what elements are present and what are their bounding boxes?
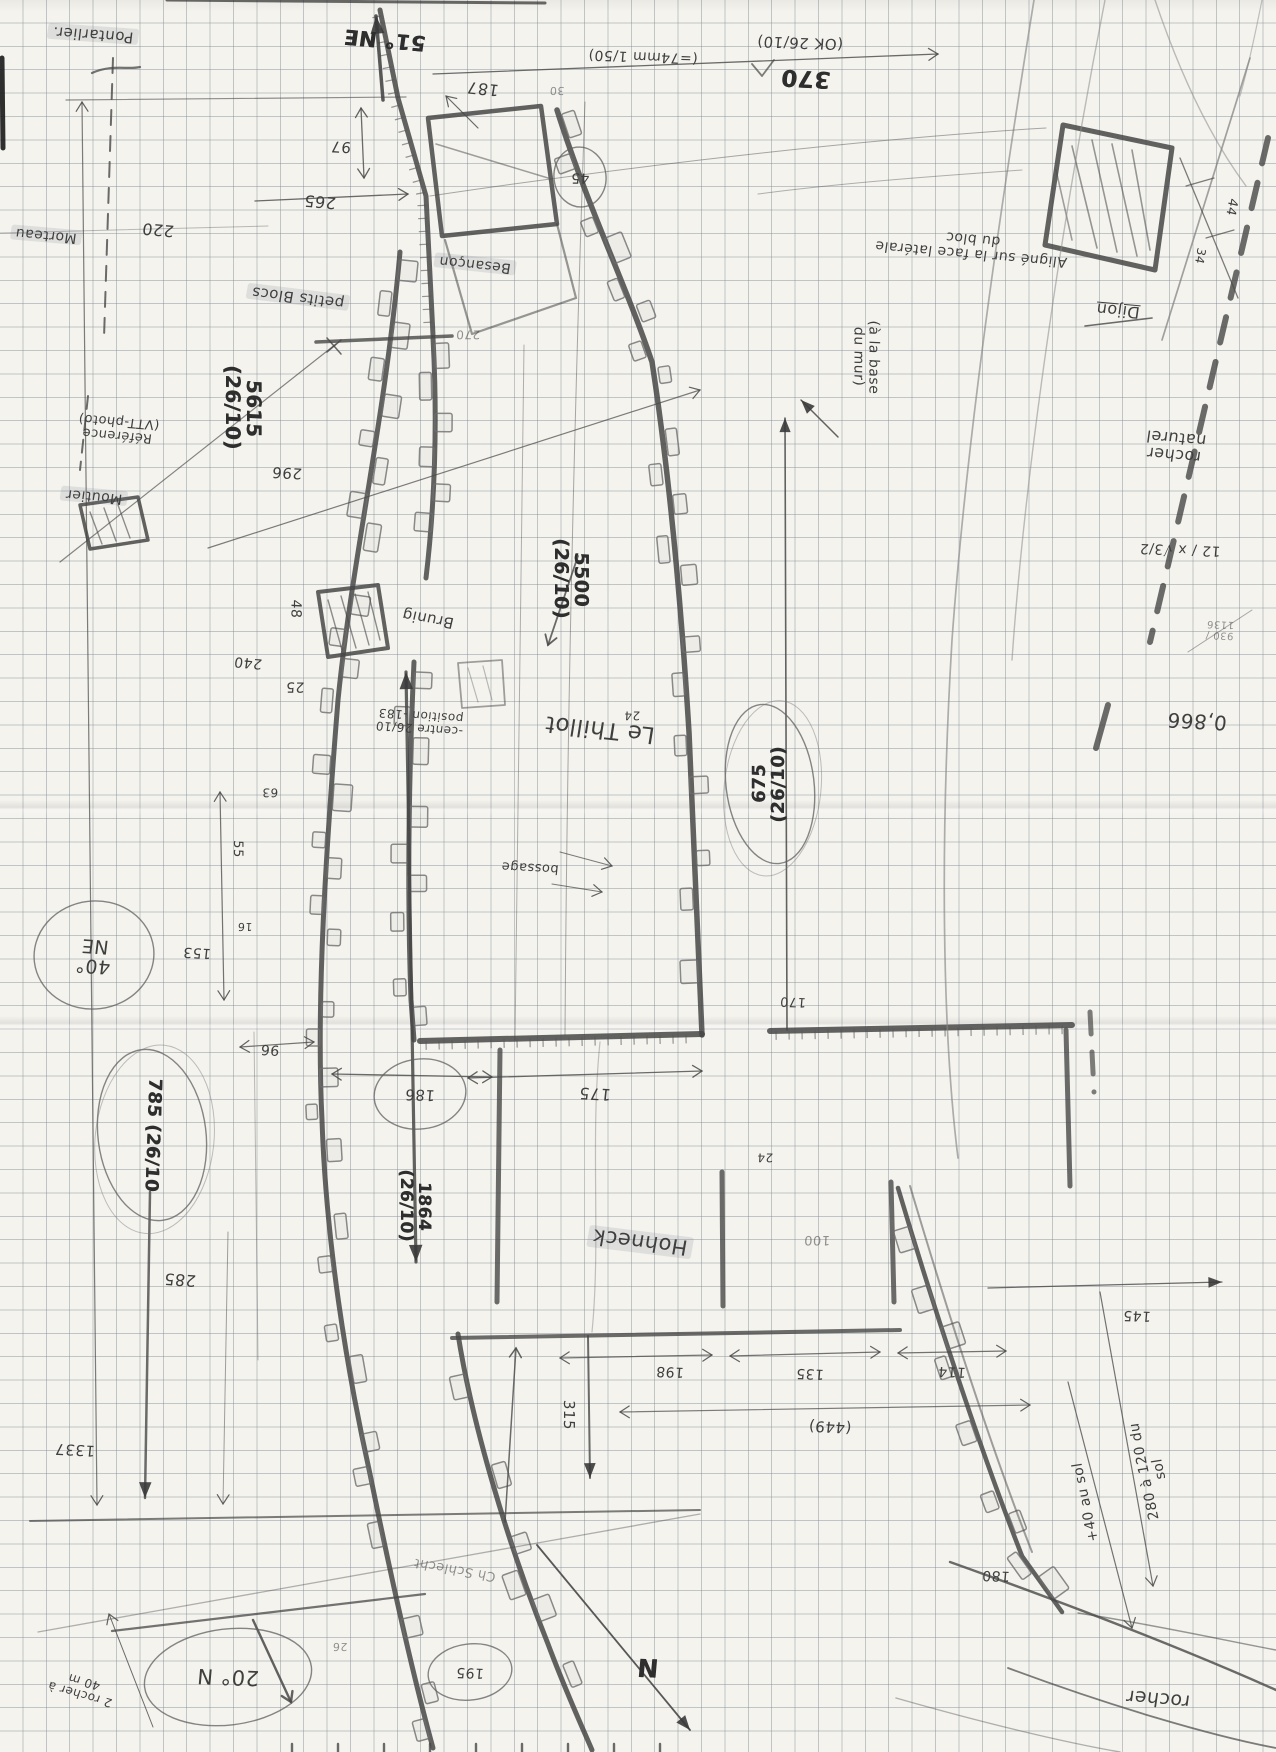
sketch-svg [0,0,1276,1752]
graph-paper-sheet: Pontarlier.51° NE187(=74mm 1/50)(OK 26/1… [0,0,1276,1752]
